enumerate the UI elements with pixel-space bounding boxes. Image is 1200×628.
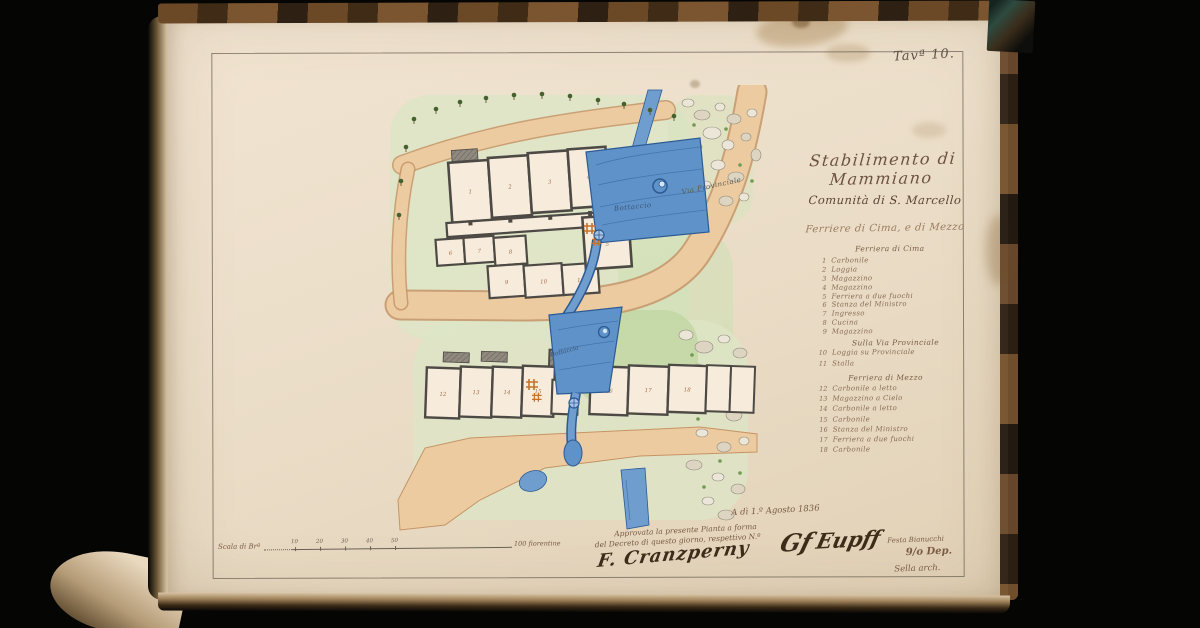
legend-item-label: Carbonile [833,445,870,453]
legend-item-label: Magazzino [831,283,872,291]
room-number: 18 [684,387,692,393]
scale-tick-label: 40 [366,538,373,544]
legend-section-heading: Ferriera di Mezzo [848,372,990,382]
legend-item-label: Carbonile a letto [832,384,897,393]
legend-item-number: 14 [818,405,827,413]
legend-item: 11Stalla [818,358,990,371]
scale-tick [320,547,321,551]
legend-item-label: Carbonile [833,415,870,423]
photo-black-background: Tavª 10. [0,0,1200,628]
scale-unit-label: 100 fiorentine [514,539,561,547]
legend-item-number: 11 [818,360,827,368]
room-number: 10 [540,279,548,286]
scale-tick-label: 10 [291,539,298,545]
torn-page-right-edge [1000,14,1018,600]
legend-item-number: 1 [817,257,826,265]
scale-tick [370,546,371,550]
scale-tick [345,547,346,551]
corner-annotation: Festa Bianucchi 9/o Dep. Sella arch. [877,531,999,587]
worn-leather-top-edge [158,1,1010,24]
legend-item-number: 4 [817,283,826,291]
legend-item-label: Ingresso [832,310,865,318]
corner-annotation-line: Festa Bianucchi [887,535,944,545]
scale-tick [295,547,296,551]
room-number: 13 [472,390,480,396]
legend-item-label: Ferriera a due fuochi [831,291,913,300]
legend-item-label: Cucina [832,319,859,327]
page-stack-bottom-edge [158,593,1010,614]
legend-item: 9Magazzino [818,326,990,336]
legend-item-number: 8 [818,319,827,327]
legend-item-label: Magazzino [831,274,872,282]
legend-item-number: 5 [817,292,826,300]
room-number: 12 [439,392,447,398]
legend-item-number: 18 [819,446,828,454]
room-number: 17 [645,388,653,394]
marbled-cover-corner [987,0,1036,53]
scale-bar: Scala di Brª 10 20 30 40 50 100 fiorenti… [218,531,578,557]
legend-item-number: 15 [819,415,828,423]
signature-paraph: Eupff [814,525,883,554]
scale-tick-label: 30 [341,539,348,545]
legend-item-number: 9 [818,328,827,336]
legend-item-number: 2 [817,266,826,274]
legend-item-number: 6 [818,301,827,309]
legend: Ferriera di Cima 1Carbonile 2Loggia 3Mag… [817,243,991,456]
legend-item-number: 16 [819,425,828,433]
legend-item-number: 3 [817,274,826,282]
scale-lead-dots [264,549,292,550]
signature-paraph: Gf [777,527,816,558]
scale-tick [395,546,396,550]
legend-item-label: Stalla [832,359,854,367]
legend-subsection-heading: Sulla Via Provinciale [852,337,990,347]
legend-item-label: Magazzino a Cielo [832,394,902,403]
legend-item-label: Carbonile a letto [832,404,897,413]
legend-item-label: Stanza del Ministro [833,425,908,434]
legend-item-label: Loggia [831,265,857,273]
map-subtitle: Comunità di S. Marcello [800,193,971,207]
corner-annotation-line: Sella arch. [894,563,940,575]
corner-annotation-line: 9/o Dep. [906,546,953,559]
approval-note: A dì 1.º Agosto 1836 Approvata la presen… [583,495,887,596]
legend-item-number: 10 [818,349,827,357]
room-number: 1 [468,189,472,195]
legend-item-number: 13 [818,395,827,403]
legend-item: 18Carbonile [819,444,991,456]
scale-tick-label: 50 [391,538,398,544]
legend-section-heading: Ferriera di Cima [855,243,989,253]
legend-item-label: Loggia su Provinciale [832,348,915,357]
legend-item-label: Ferriera a due fuochi [833,435,915,444]
map-title: Stabilimento di Mammiano [778,148,986,190]
site-plan-drawing: 1 2 3 4 5 6 7 8 9 10 11 [368,85,788,535]
legend-item-number: 7 [818,310,827,318]
room-number: 14 [503,390,511,396]
approval-date: A dì 1.º Agosto 1836 [731,504,820,519]
legend-item-number: 17 [819,436,828,444]
scale-line: 10 20 30 40 50 [292,547,512,550]
legend-item-label: Magazzino [832,327,873,335]
legend-item-label: Stanza del Ministro [832,300,907,309]
scale-label: Scala di Brª [218,542,260,550]
scale-tick-label: 20 [316,539,323,545]
legend-item-number: 12 [818,385,827,393]
legend-item-label: Carbonile [831,256,868,264]
